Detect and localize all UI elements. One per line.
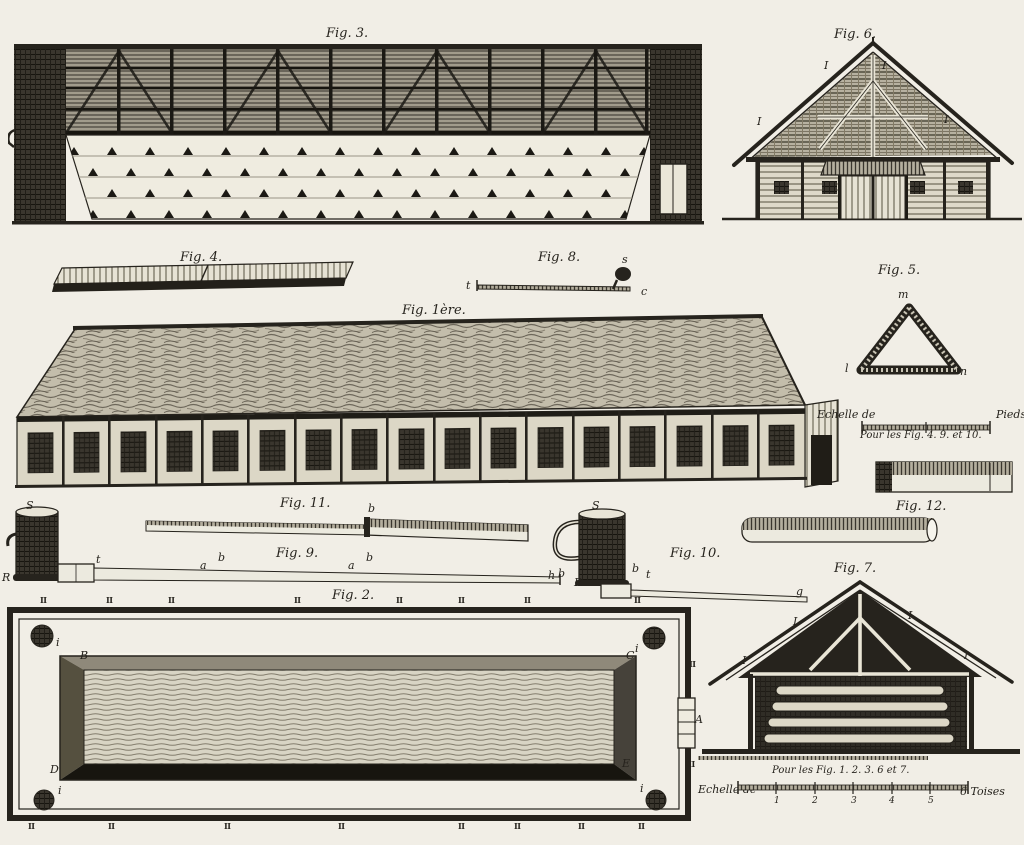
left-end-wall (14, 49, 66, 221)
toises-tick-number: 1 (774, 797, 780, 806)
fig9-letter: R (2, 572, 10, 583)
fig8-letter: c (641, 286, 647, 297)
fig9-letter: b (366, 552, 373, 563)
jug-body (579, 514, 625, 582)
fig2-post-letter: i (640, 783, 644, 794)
fig2-edge-tick: II (224, 822, 230, 830)
front-wall (15, 409, 807, 488)
engraved-plate: Fig. 3. (0, 0, 1024, 845)
jug-rim (579, 509, 625, 519)
fig6-letter: I (824, 60, 828, 71)
fig3-label: Fig. 3. (326, 27, 368, 40)
fig7-letter: I (964, 650, 968, 661)
basin-bottom-bevel (60, 764, 636, 780)
fig7-letter: I (908, 610, 912, 621)
shuttered-windows (28, 425, 794, 473)
door-leaf-right (874, 176, 905, 219)
corner-post (31, 625, 53, 647)
corner-post (34, 790, 54, 810)
fig5-label: Fig. 5. (878, 264, 920, 277)
fig2-edge-tick: II (458, 822, 464, 830)
fig2-edge-tick: II (638, 822, 644, 830)
fig2-edge-tick: II (524, 596, 530, 604)
fig2-edge-tick: II (294, 596, 300, 604)
fig9-letter: a (348, 560, 355, 571)
fig2-edge-tick: II (514, 822, 520, 830)
hook-head (615, 267, 631, 281)
fig8-letter: s (622, 254, 628, 265)
fig1-thatched-building-elevation (5, 303, 845, 498)
basin-top-bevel (60, 656, 636, 670)
pieds-scale-prefix: Echelle de (817, 409, 875, 420)
door-leaf-left (841, 176, 872, 219)
fig6-letter: I (757, 116, 761, 127)
fig9-label: Fig. 9. (276, 547, 318, 560)
fig2-edge-tick: II (578, 822, 584, 830)
corner-post (646, 790, 666, 810)
pieds-scale-unit: Pieds (996, 409, 1024, 420)
wall-hook (8, 130, 15, 147)
fig2-post-letter: i (635, 643, 639, 654)
fig3-drying-shed-elevation (8, 38, 708, 233)
fig1-label: Fig. 1ère. (402, 304, 466, 317)
fig2-edge-tick: II (396, 596, 402, 604)
apron-hooks (66, 135, 650, 219)
fig2-corner-letter: B (80, 650, 88, 661)
fig8-label: Fig. 8. (538, 251, 580, 264)
fig4-label: Fig. 4. (180, 251, 222, 264)
toises-scale-caption: Pour les Fig. 1. 2. 3. 6 et 7. (772, 766, 909, 776)
pot-rim (16, 507, 58, 517)
fig2-edge-tick: II (106, 596, 112, 604)
fig2-edge-tick: II (338, 822, 344, 830)
fig2-edge-tick: III (685, 760, 695, 768)
toises-tick-number: 2 (812, 797, 818, 806)
fig10-label: Fig. 10. (670, 547, 720, 560)
fig10-letter: b (632, 563, 639, 574)
fig9-letter: t (96, 554, 100, 565)
fig10-letter: S (592, 500, 600, 511)
fig9-letter: S (26, 500, 34, 511)
fig6-label: Fig. 6. (834, 28, 876, 41)
basin-water (84, 670, 614, 764)
fig2-edge-tick: II (40, 596, 46, 604)
fig2-edge-tick: II (108, 822, 114, 830)
pieds-scale-caption: Pour les Fig. 4. 9. et 10. (860, 431, 982, 441)
fig6-letter: I (882, 60, 886, 71)
fig5-letter: l (845, 363, 849, 374)
fig5-letter: m (898, 289, 908, 300)
fig2-basin-plan (2, 592, 702, 837)
sluice-gate (678, 698, 695, 748)
toises-tick-number: 3 (851, 797, 857, 806)
fig5-triangle-frame (845, 268, 975, 383)
fig10-letter: b (558, 568, 565, 579)
toises-tick-number: 4 (889, 797, 895, 806)
fig8-letter: t (466, 280, 470, 291)
fig9-letter: a (200, 560, 207, 571)
fig6-gable-house-elevation (722, 35, 1022, 225)
fig2-corner-letter: D (50, 764, 59, 775)
fig10-letter: R (574, 577, 582, 588)
pot-body (16, 512, 58, 576)
basin-left-bevel (60, 656, 84, 780)
fig12-roller (872, 458, 1018, 498)
fig5-letter: n (960, 366, 967, 377)
fig2-corner-letter: E (622, 758, 630, 769)
fig7-letter: I (793, 616, 797, 627)
fig6-letter: I (944, 114, 948, 125)
fig2-post-letter: i (56, 637, 60, 648)
toises-tick-number: 5 (928, 797, 934, 806)
door-awning (821, 161, 925, 175)
fig7-shed-section (698, 560, 1024, 780)
fig7-label: Fig. 7. (834, 562, 876, 575)
fig2-edge-tick: II (168, 596, 174, 604)
fig7-letter: I (742, 655, 746, 666)
fig9-letter: b (218, 552, 225, 563)
fig2-label: Fig. 2. (332, 589, 374, 602)
fig2-edge-tick: II (458, 596, 464, 604)
end-door (811, 435, 832, 485)
fig2-edge-tick: II (634, 596, 640, 604)
long-tube (94, 568, 560, 583)
fig2-post-letter: i (58, 785, 62, 796)
fig2-edge-tick: II (689, 660, 695, 668)
thatched-roof (17, 317, 805, 417)
fig2-edge-tick: II (28, 822, 34, 830)
corner-post (643, 627, 665, 649)
toises-scale-unit: 6 Toises (960, 786, 1005, 797)
fig2-corner-letter: C (626, 650, 634, 661)
pot-lug (8, 534, 16, 546)
toises-scale-bar (736, 780, 972, 796)
fig10-letter: t (646, 569, 650, 580)
